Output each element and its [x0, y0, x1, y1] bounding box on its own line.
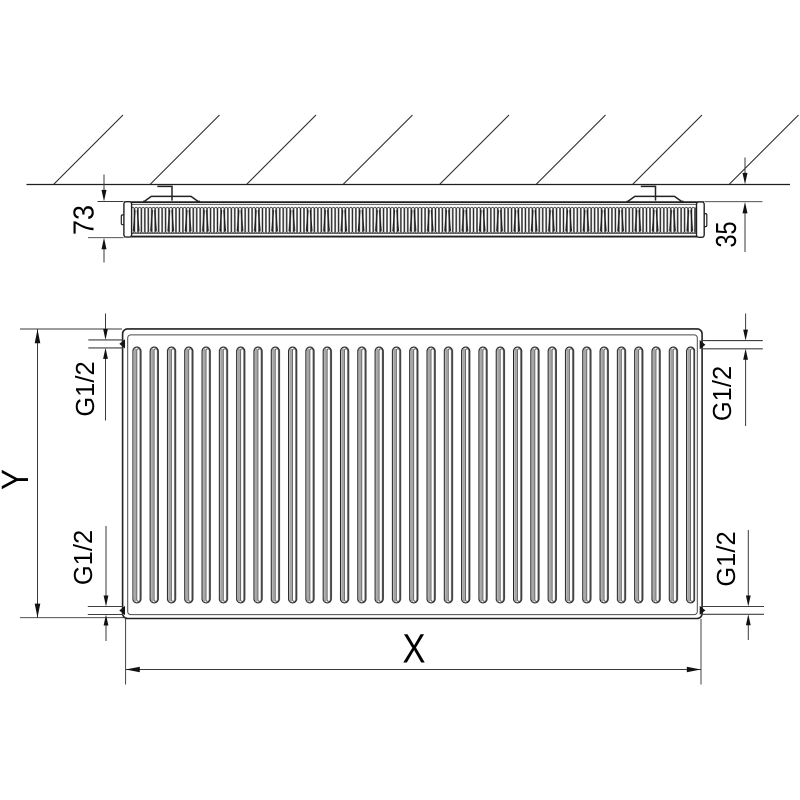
- svg-text:35: 35: [711, 222, 743, 248]
- svg-text:X: X: [403, 626, 426, 672]
- svg-text:G1/2: G1/2: [70, 530, 98, 585]
- svg-text:73: 73: [69, 205, 101, 235]
- svg-text:G1/2: G1/2: [72, 361, 100, 416]
- svg-text:Y: Y: [0, 469, 37, 490]
- svg-text:G1/2: G1/2: [713, 531, 741, 586]
- svg-text:G1/2: G1/2: [709, 366, 737, 421]
